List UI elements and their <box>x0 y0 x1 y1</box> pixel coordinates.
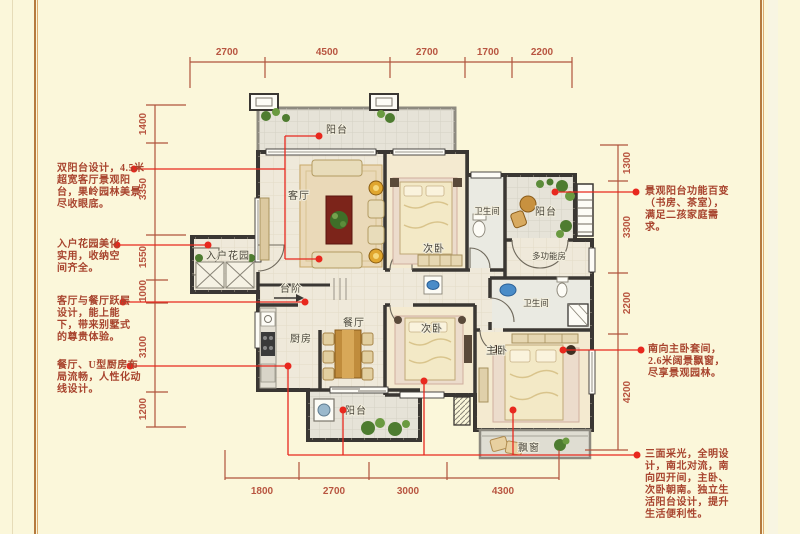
room-label-bay-window: 飘窗 <box>518 441 540 454</box>
floorplan-page: { "colors": { "background": "#fbf7da", "… <box>0 0 800 534</box>
room-label-dining: 餐厅 <box>343 316 365 329</box>
annotation-left-double-balcony: 双阳台设计，4.5米超宽客厅景观阳台，果岭园林美景尽收眼底。 <box>57 163 145 211</box>
dimension-chain-left <box>146 105 186 427</box>
dim-left-4: 1000 <box>138 279 149 302</box>
room-label-steps: 台阶 <box>280 282 302 295</box>
dim-right-4: 4200 <box>622 380 633 403</box>
dim-left-6: 1200 <box>138 397 149 420</box>
dim-left-3: 1550 <box>138 245 149 268</box>
room-label-balcony-right: 阳台 <box>535 205 557 218</box>
annotation-left-entry-garden: 入户花园美化实用，收纳空间齐全。 <box>57 239 123 275</box>
dimension-chain-top <box>190 57 572 88</box>
dim-right-2: 3300 <box>622 215 633 238</box>
room-label-living: 客厅 <box>288 189 310 202</box>
room-label-balcony-top: 阳台 <box>326 123 348 136</box>
annotation-left-kitchen: 餐厅、U型厨房布局流畅，人性化动线设计。 <box>57 360 141 396</box>
dim-left-1: 1400 <box>138 112 149 135</box>
room-label-master: 主卧 <box>486 344 508 357</box>
dim-right-1: 1300 <box>622 151 633 174</box>
room-label-bedroom-top: 次卧 <box>423 242 445 255</box>
annotation-right-lighting: 三面采光，全明设计，南北对流，南向四开间，主卧、次卧朝南。独立生活阳台设计，提升… <box>645 449 729 521</box>
annotation-right-landscape-balcony: 景观阳台功能百变（书房、茶室），满足二孩家庭需求。 <box>645 186 731 234</box>
dim-top-2: 4500 <box>316 47 339 58</box>
room-label-multi-room: 多功能房 <box>532 251 566 261</box>
dim-right-3: 2200 <box>622 291 633 314</box>
dim-bottom-1: 1800 <box>251 486 274 497</box>
annotation-right-master-suite: 南向主卧套间，2.6米阔景飘窗，尽享景观园林。 <box>648 344 728 380</box>
dim-left-5: 3100 <box>138 335 149 358</box>
room-label-kitchen: 厨房 <box>290 332 312 345</box>
dim-bottom-4: 4300 <box>492 486 515 497</box>
dim-bottom-2: 2700 <box>323 486 346 497</box>
room-label-bath-top: 卫生间 <box>474 206 500 216</box>
dim-bottom-3: 3000 <box>397 486 420 497</box>
dim-top-3: 2700 <box>416 47 439 58</box>
dim-top-4: 1700 <box>477 47 500 58</box>
room-label-bedroom-bottom: 次卧 <box>421 322 443 335</box>
room-label-bath-bottom: 卫生间 <box>523 298 549 308</box>
room-label-entry-garden: 入户花园 <box>206 249 250 262</box>
dim-top-1: 2700 <box>216 47 239 58</box>
kitchen-fixtures <box>260 308 276 388</box>
annotation-left-split-level: 客厅与餐厅跃层设计，能上能下，带来别墅式的尊贵体验。 <box>57 296 137 344</box>
dining-furniture <box>323 330 373 380</box>
room-label-balcony-bottom: 阳台 <box>345 404 367 417</box>
dim-top-5: 2200 <box>531 47 554 58</box>
